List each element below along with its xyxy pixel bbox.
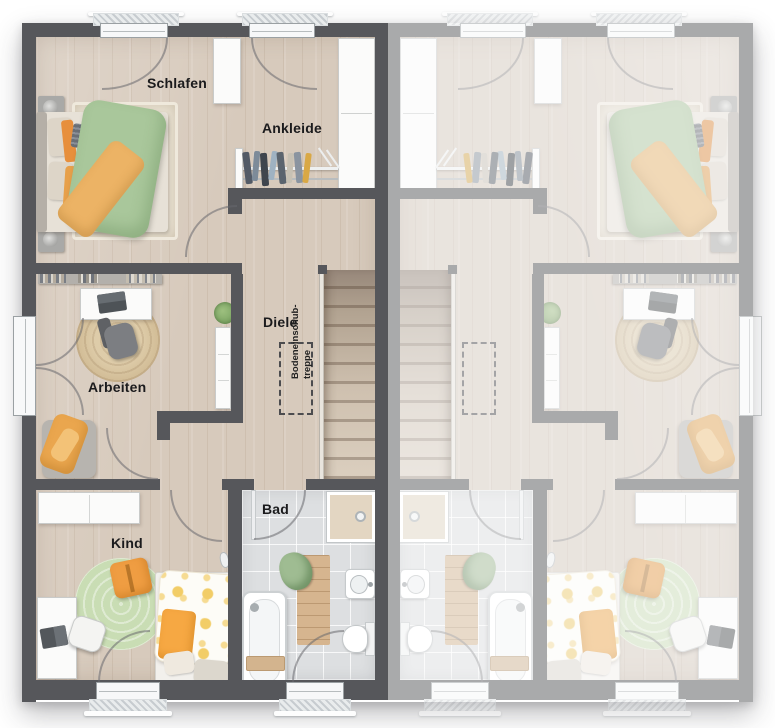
wardrobe-cabinet <box>534 38 562 104</box>
basin-bowl <box>407 575 425 594</box>
cushion-strap <box>125 564 135 592</box>
window-side <box>13 316 36 416</box>
faucet-icon <box>516 603 525 612</box>
window-top-left <box>607 23 675 38</box>
wardrobe-divider <box>685 495 686 523</box>
floor-cushion <box>109 556 154 599</box>
window-ledge <box>274 711 356 716</box>
bed-pillow <box>163 650 196 676</box>
dressing-closet <box>400 38 437 191</box>
shower <box>400 492 448 542</box>
washbasin <box>345 569 375 599</box>
staircase <box>324 270 375 480</box>
lamp-icon <box>717 232 732 247</box>
wall-top <box>22 23 388 37</box>
hallway-sideboard <box>215 327 231 409</box>
bed-headboard <box>728 112 739 232</box>
staircase <box>400 270 451 480</box>
wall-dressing-south <box>400 188 547 199</box>
hallway-sideboard <box>544 327 560 409</box>
wall-top <box>387 23 753 37</box>
wall-bedroom-south <box>533 263 739 274</box>
window-bottom-right <box>431 682 489 700</box>
floor-cushion <box>622 556 667 599</box>
basin-bowl <box>350 575 368 594</box>
floor-plan-canvas: Schlafen Ankleide Diele Arbeiten Kind Ba… <box>0 0 775 728</box>
stair-railing <box>451 270 456 480</box>
window-bottom-left <box>615 682 679 700</box>
window-side <box>739 316 762 416</box>
wall-bath-north-east <box>400 479 469 490</box>
window-top-right <box>460 23 526 38</box>
laptop <box>97 291 127 314</box>
wall-door-post <box>157 411 170 440</box>
closet-divider <box>341 113 372 114</box>
drawer-line <box>546 380 557 381</box>
drawer-line <box>218 354 229 355</box>
window-top-left <box>100 23 168 38</box>
wall-kidsroom-north <box>36 479 160 490</box>
window-bottom-left <box>96 682 160 700</box>
wall-kids-bath-divider <box>228 479 242 680</box>
unit-left <box>22 12 388 718</box>
wardrobe-cabinet <box>213 38 241 104</box>
window-ledge <box>603 711 691 716</box>
laptop <box>648 291 678 314</box>
wall-bath-north-east <box>306 479 375 490</box>
faucet-icon <box>402 582 407 587</box>
laptop <box>706 625 735 649</box>
window-top-right <box>249 23 315 38</box>
wall-hall-west <box>231 274 243 423</box>
faucet-icon <box>368 582 373 587</box>
toilet <box>342 625 368 653</box>
tub-caddy <box>490 656 529 671</box>
bed-headboard <box>36 112 47 232</box>
closet-divider <box>403 113 434 114</box>
bathtub <box>488 591 533 689</box>
wall-kids-bath-divider <box>533 479 547 680</box>
attic-hatch-outline <box>462 342 496 415</box>
wardrobe-divider <box>89 495 90 523</box>
wall-party <box>387 23 400 700</box>
stair-post <box>318 265 327 274</box>
drawer-line <box>546 354 557 355</box>
bed-pillow <box>580 650 613 676</box>
drawer-line <box>218 380 229 381</box>
faucet-icon <box>250 603 259 612</box>
kids-wardrobe <box>38 492 140 524</box>
wall-dressing-south <box>228 188 375 199</box>
tub-caddy <box>246 656 285 671</box>
shower-drain-icon <box>409 511 420 522</box>
window-ledge <box>84 711 172 716</box>
shower-drain-icon <box>355 511 366 522</box>
cushion-strap <box>640 564 650 592</box>
bathtub <box>242 591 287 689</box>
unit-right-mirrored <box>387 12 753 718</box>
window-bottom-right <box>286 682 344 700</box>
dressing-closet <box>338 38 375 191</box>
attic-hatch-outline <box>279 342 313 415</box>
shower <box>327 492 375 542</box>
wall-kidsroom-north <box>615 479 739 490</box>
stair-railing <box>319 270 324 480</box>
wall-bedroom-south <box>36 263 242 274</box>
kids-wardrobe <box>635 492 737 524</box>
wall-hall-west <box>532 274 544 423</box>
washbasin <box>400 569 430 599</box>
toilet <box>407 625 433 653</box>
window-ledge <box>419 711 501 716</box>
stair-post <box>448 265 457 274</box>
lamp-icon <box>43 232 58 247</box>
